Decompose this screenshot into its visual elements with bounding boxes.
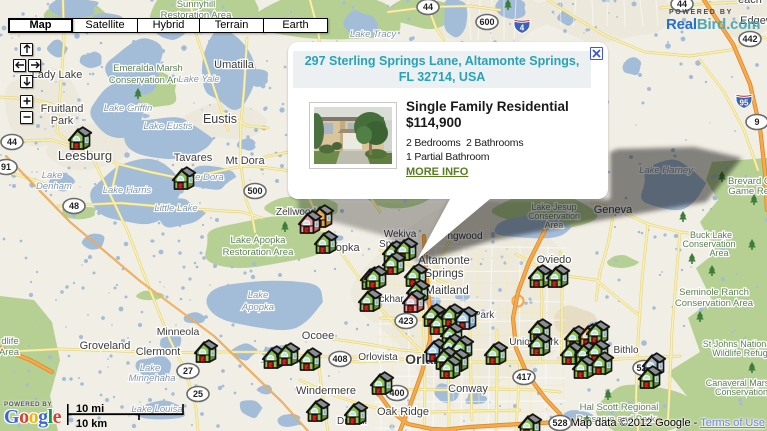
svg-text:Bithlo: Bithlo [613,345,638,356]
svg-text:408: 408 [332,354,347,364]
svg-text:95: 95 [740,99,749,108]
svg-text:Clermont: Clermont [136,346,181,358]
svg-text:Lake Griffin: Lake Griffin [104,103,153,114]
svg-text:Springs: Springs [425,268,464,280]
svg-text:each: each [738,0,762,6]
svg-text:Lake Apopka: Lake Apopka [231,235,287,246]
svg-text:9: 9 [754,117,759,127]
svg-text:Sunnyhill: Sunnyhill [177,0,216,10]
svg-text:Tavares: Tavares [174,152,213,164]
svg-text:423: 423 [398,316,413,326]
svg-text:Fruitland: Fruitland [41,103,84,115]
svg-text:Minneola: Minneola [157,326,200,338]
svg-text:Area: Area [0,347,20,358]
svg-text:Windermere: Windermere [296,385,356,397]
svg-text:442: 442 [742,34,757,44]
svg-text:Conservation Ar: Conservation Ar [715,387,767,397]
svg-text:Seminole Ranch: Seminole Ranch [679,287,749,298]
svg-text:Maitland: Maitland [425,285,468,297]
svg-text:Park: Park [51,115,74,127]
svg-text:Eustis: Eustis [203,112,237,126]
svg-text:Restoration Area: Restoration Area [223,247,294,258]
svg-text:Conservation Area: Conservation Area [675,298,754,309]
svg-text:Hal Scott Regional: Hal Scott Regional [580,402,659,413]
svg-text:Umatilla: Umatilla [214,59,255,71]
svg-text:Game Ref: Game Ref [728,186,767,197]
svg-text:Leesburg: Leesburg [58,148,112,163]
svg-text:500: 500 [247,186,262,196]
svg-text:48: 48 [69,201,79,211]
svg-text:Groveland: Groveland [80,340,131,352]
svg-text:Lake Harris: Lake Harris [103,185,152,196]
svg-text:Denham: Denham [36,181,72,192]
svg-text:Ocoee: Ocoee [302,330,334,342]
svg-text:Little Lake: Little Lake [154,203,197,214]
svg-text:Lake: Lake [248,290,269,301]
svg-text:25: 25 [193,389,203,399]
svg-text:Emeralda Marsh: Emeralda Marsh [113,63,183,74]
svg-text:417: 417 [516,372,531,382]
svg-text:Minnehaha: Minnehaha [128,373,175,384]
svg-text:91: 91 [1,162,11,172]
svg-text:44: 44 [677,0,687,9]
svg-text:600: 600 [479,17,494,27]
svg-text:Wildlife Refug: Wildlife Refug [712,348,767,358]
svg-text:Lake: Lake [42,170,63,181]
svg-text:dlife: dlife [1,336,18,347]
svg-text:Oak Ridge: Oak Ridge [377,406,429,418]
svg-text:27: 27 [183,366,193,376]
svg-text:44: 44 [7,137,17,147]
svg-text:Lake Tracy: Lake Tracy [350,29,398,40]
svg-text:Conway: Conway [448,383,488,395]
svg-text:Oviedo: Oviedo [537,254,572,266]
svg-text:Conservation Area: Conservation Area [109,75,188,86]
svg-text:Lake Eustis: Lake Eustis [143,121,192,132]
svg-text:Orlovista: Orlovista [358,352,398,363]
svg-text:44: 44 [423,2,433,12]
svg-text:Area: Area [709,248,728,258]
svg-text:10 km: 10 km [76,418,107,430]
svg-text:Apopka: Apopka [241,302,274,313]
svg-text:528: 528 [552,418,567,428]
svg-text:Lake Yale: Lake Yale [178,74,219,85]
svg-text:Mt Dora: Mt Dora [225,155,265,167]
svg-text:4: 4 [520,24,525,33]
svg-text:10 mi: 10 mi [76,404,104,415]
